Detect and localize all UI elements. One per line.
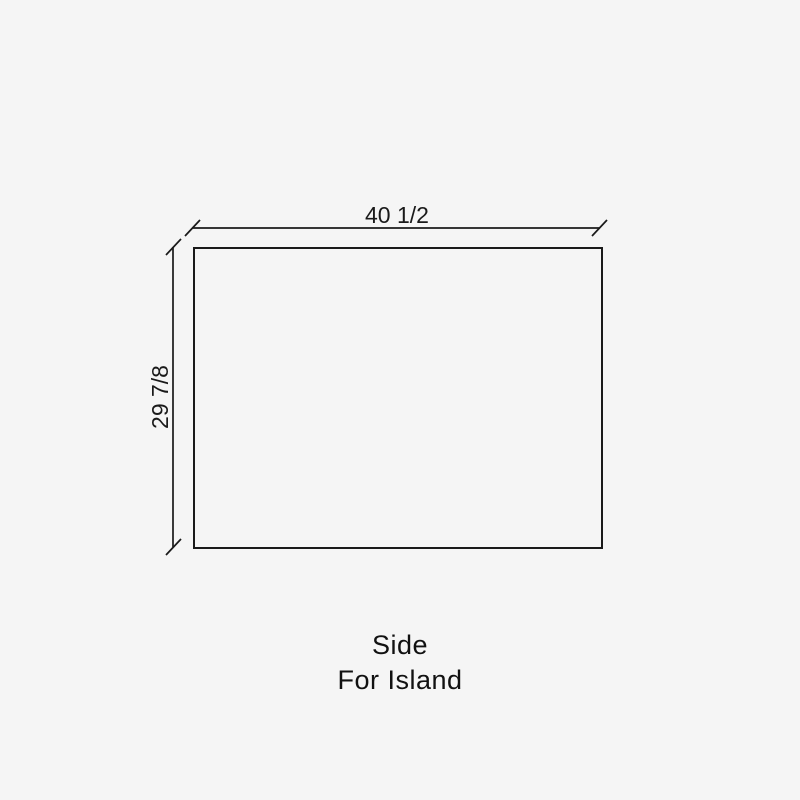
caption-line-1: Side — [0, 628, 800, 663]
drawing-canvas: 40 1/2 29 7/8 Side For Island — [0, 0, 800, 800]
height-dimension-label: 29 7/8 — [147, 365, 173, 429]
panel-outline — [194, 248, 602, 548]
height-dimension: 29 7/8 — [147, 239, 181, 555]
caption: Side For Island — [0, 628, 800, 698]
width-dimension: 40 1/2 — [185, 202, 607, 236]
caption-line-2: For Island — [0, 663, 800, 698]
width-dimension-label: 40 1/2 — [365, 202, 429, 228]
